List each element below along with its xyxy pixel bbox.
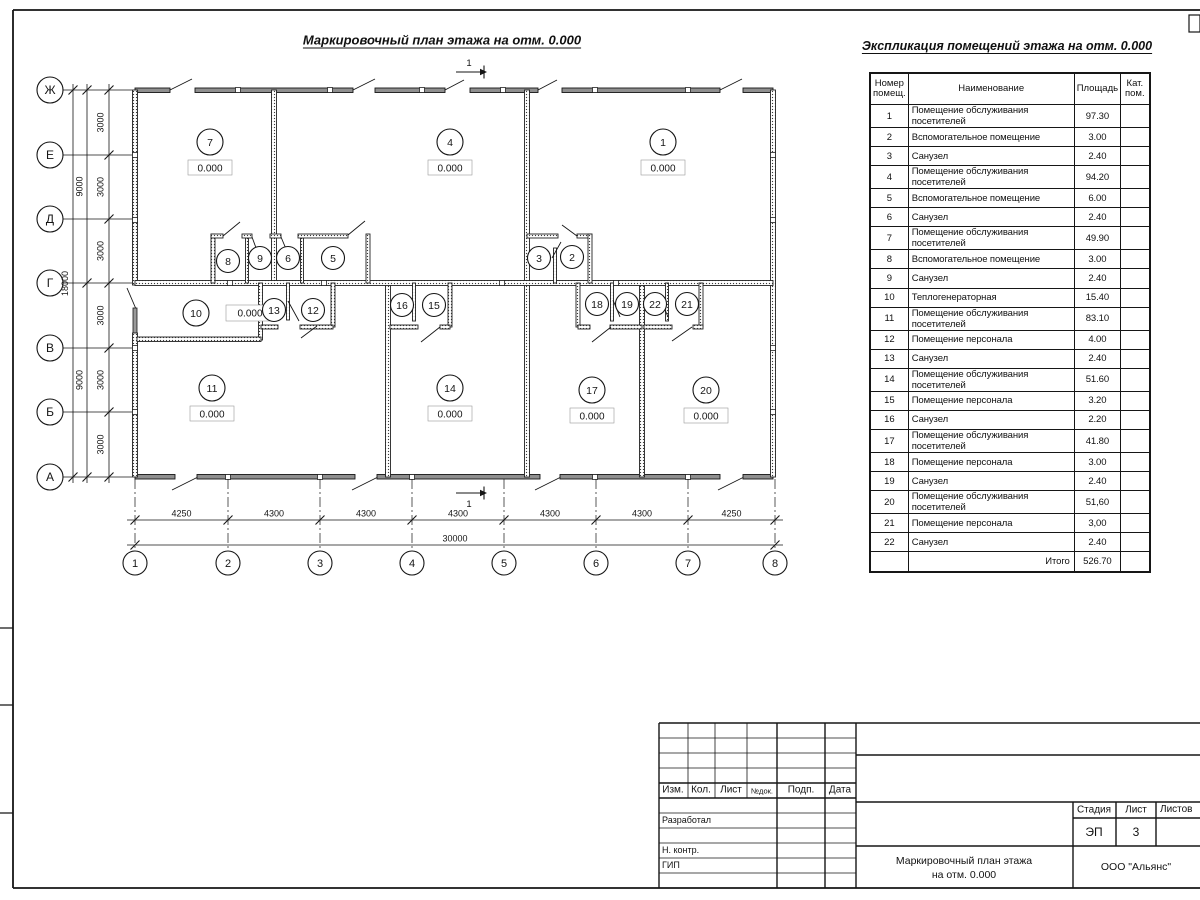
table-row: 16Санузел2.20 <box>870 410 1150 429</box>
tb-col-podp: Подп. <box>788 785 815 796</box>
room-number: 19 <box>621 299 633 311</box>
dimension-text: 4250 <box>721 509 741 519</box>
axis-col-label: 8 <box>772 558 778 570</box>
axis-row-label: Е <box>46 148 54 162</box>
dimension-text: 4300 <box>632 509 652 519</box>
room-number: 21 <box>681 299 693 311</box>
elevation-label: 0.000 <box>237 309 262 320</box>
table-row: 2Вспомогательное помещение3.00 <box>870 128 1150 147</box>
room-number: 12 <box>307 305 319 317</box>
left-door-panel <box>133 308 137 333</box>
axis-col-label: 1 <box>132 558 138 570</box>
room-number: 2 <box>569 252 575 264</box>
dimension-text: 4250 <box>171 509 191 519</box>
axis-row-label: Д <box>46 212 54 226</box>
table-row: 4Помещение обслуживания посетителей94.20 <box>870 166 1150 189</box>
tb-stage-label: Стадия <box>1077 805 1111 816</box>
tb-role-gip: ГИП <box>662 860 680 870</box>
axis-col-label: 3 <box>317 558 323 570</box>
dimension-text: 18000 <box>60 271 70 296</box>
table-row: 15Помещение персонала3.20 <box>870 391 1150 410</box>
elevation-label: 0.000 <box>650 164 675 175</box>
table-row: 5Вспомогательное помещение6.00 <box>870 189 1150 208</box>
room-number: 17 <box>586 385 598 397</box>
dimension-text: 3000 <box>96 370 106 390</box>
tb-col-ndok: №док. <box>751 787 773 796</box>
col-header-number: Номер помещ. <box>870 73 908 105</box>
tb-doc-title-line1: Маркировочный план этажа <box>896 855 1032 867</box>
elevation-label: 0.000 <box>437 410 462 421</box>
tb-stage-value: ЭП <box>1085 825 1102 839</box>
table-row: 10Теплогенераторная15.40 <box>870 288 1150 307</box>
table-row: 19Санузел2.40 <box>870 472 1150 491</box>
table-row: 1Помещение обслуживания посетителей97.30 <box>870 105 1150 128</box>
dimension-text: 4300 <box>356 509 376 519</box>
table-row: 12Помещение персонала4.00 <box>870 330 1150 349</box>
tb-sheet-label: Лист <box>1125 805 1147 816</box>
explication-title: Экспликация помещений этажа на отм. 0.00… <box>862 39 1152 53</box>
axis-row-label: Б <box>46 405 54 419</box>
table-row: 9Санузел2.40 <box>870 269 1150 288</box>
axis-row-label: Ж <box>44 83 55 97</box>
table-total-row: Итого526.70 <box>870 552 1150 572</box>
elevation-label: 0.000 <box>199 410 224 421</box>
tb-role-ncontr: Н. контр. <box>662 845 699 855</box>
dimension-text: 3000 <box>96 434 106 454</box>
axis-row-label: А <box>46 470 54 484</box>
axis-col-label: 7 <box>685 558 691 570</box>
table-row: 14Помещение обслуживания посетителей51.6… <box>870 368 1150 391</box>
room-number: 3 <box>536 253 542 265</box>
room-number: 16 <box>396 300 408 312</box>
room-number: 4 <box>447 137 453 149</box>
tb-sheet-value: 3 <box>1133 825 1140 839</box>
table-row: 7Помещение обслуживания посетителей49.90 <box>870 227 1150 250</box>
room-number: 15 <box>428 300 440 312</box>
axis-row-label: В <box>46 341 54 355</box>
dimension-text: 3000 <box>96 112 106 132</box>
elevation-label: 0.000 <box>693 412 718 423</box>
axis-row-label: Г <box>47 276 54 290</box>
tb-col-list: Лист <box>720 785 742 796</box>
room-number: 9 <box>257 253 263 265</box>
dimension-text: 9000 <box>75 176 85 196</box>
explication-table: Номер помещ. Наименование Площадь Кат. п… <box>869 72 1151 573</box>
table-row: 11Помещение обслуживания посетителей83.1… <box>870 307 1150 330</box>
room-number: 8 <box>225 256 231 268</box>
room-number: 5 <box>330 253 336 265</box>
elevation-label: 0.000 <box>437 164 462 175</box>
dimension-text: 4300 <box>264 509 284 519</box>
room-number: 13 <box>268 305 280 317</box>
table-row: 3Санузел2.40 <box>870 147 1150 166</box>
elevation-label: 0.000 <box>579 412 604 423</box>
tb-col-data: Дата <box>829 785 851 796</box>
dimension-text: 9000 <box>75 370 85 390</box>
axis-col-label: 5 <box>501 558 507 570</box>
table-row: 13Санузел2.40 <box>870 349 1150 368</box>
table-row: 20Помещение обслуживания посетителей51,6… <box>870 491 1150 514</box>
section-mark-label: 1 <box>466 499 471 510</box>
axis-col-label: 4 <box>409 558 415 570</box>
tb-col-izm: Изм. <box>662 785 683 796</box>
section-mark-label: 1 <box>466 58 471 69</box>
table-row: 8Вспомогательное помещение3.00 <box>870 250 1150 269</box>
dimension-text: 4300 <box>540 509 560 519</box>
room-number: 14 <box>444 383 456 395</box>
room-number: 7 <box>207 137 213 149</box>
tb-doc-title-line2: на отм. 0.000 <box>932 869 996 881</box>
tb-role-developed: Разработал <box>662 815 711 825</box>
tb-sheets-label: Листов <box>1160 804 1193 815</box>
room-number: 22 <box>649 299 661 311</box>
table-row: 22Санузел2.40 <box>870 533 1150 552</box>
room-number: 20 <box>700 385 712 397</box>
dimension-text: 3000 <box>96 177 106 197</box>
col-header-area: Площадь <box>1074 73 1120 105</box>
axis-col-label: 2 <box>225 558 231 570</box>
dimension-text: 4300 <box>448 509 468 519</box>
tb-col-kol: Кол. <box>691 785 711 796</box>
dimension-text: 3000 <box>96 241 106 261</box>
table-row: 18Помещение персонала3.00 <box>870 453 1150 472</box>
table-row: 17Помещение обслуживания посетителей41.8… <box>870 430 1150 453</box>
col-header-name: Наименование <box>908 73 1074 105</box>
table-row: 6Санузел2.40 <box>870 208 1150 227</box>
col-header-cat: Кат. пом. <box>1121 73 1150 105</box>
dimension-text: 3000 <box>96 305 106 325</box>
room-number: 6 <box>285 253 291 265</box>
tb-company: ООО "Альянс" <box>1101 861 1171 873</box>
room-number: 11 <box>207 383 218 395</box>
room-number: 1 <box>660 137 666 149</box>
elevation-label: 0.000 <box>197 164 222 175</box>
table-row: 21Помещение персонала3,00 <box>870 514 1150 533</box>
explication-header-row: Номер помещ. Наименование Площадь Кат. п… <box>870 73 1150 105</box>
room-number: 10 <box>190 308 202 320</box>
axis-col-label: 6 <box>593 558 599 570</box>
room-number: 18 <box>591 299 603 311</box>
drawing-sheet: { "plan": { "title": "Маркировочный план… <box>0 0 1200 900</box>
plan-title: Маркировочный план этажа на отм. 0.000 <box>303 33 581 48</box>
dimension-text: 30000 <box>442 534 467 544</box>
